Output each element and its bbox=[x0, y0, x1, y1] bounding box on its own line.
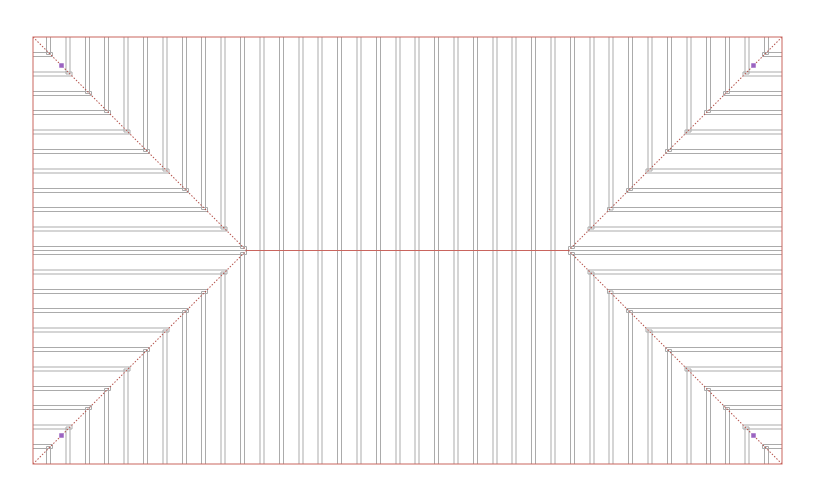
grip-point[interactable] bbox=[59, 63, 64, 68]
grip-point[interactable] bbox=[59, 433, 64, 438]
hip-line[interactable] bbox=[569, 251, 783, 465]
hip-line[interactable] bbox=[33, 251, 247, 465]
hip-line[interactable] bbox=[33, 37, 247, 251]
grip-point[interactable] bbox=[751, 63, 756, 68]
grip-point[interactable] bbox=[751, 433, 756, 438]
hip-line[interactable] bbox=[569, 37, 783, 251]
drawing-canvas[interactable] bbox=[0, 0, 817, 498]
roof-framing-drawing bbox=[0, 0, 817, 498]
